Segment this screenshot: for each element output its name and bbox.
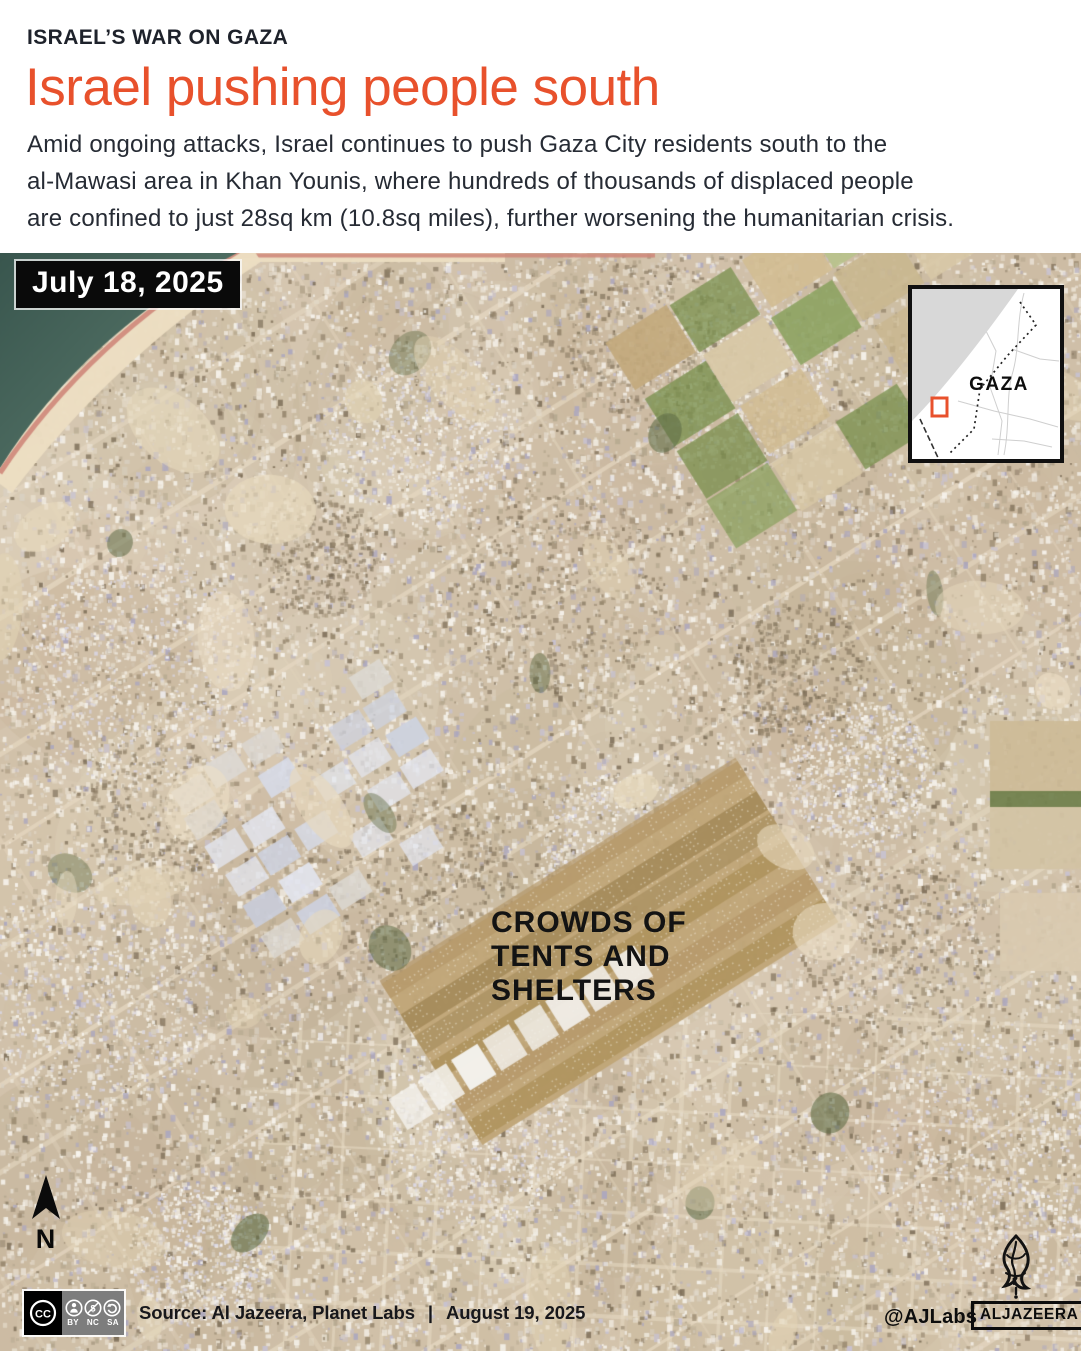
cc-nc-icon: $ xyxy=(84,1299,102,1317)
aljazeera-wordmark: ALJAZEERA xyxy=(971,1301,1081,1330)
cc-sa-label: SA xyxy=(107,1318,119,1327)
cc-sa-icon xyxy=(103,1299,121,1317)
description: Amid ongoing attacks, Israel continues t… xyxy=(27,126,954,237)
north-indicator: N xyxy=(28,1175,64,1255)
north-label: N xyxy=(28,1224,64,1255)
svg-text:CC: CC xyxy=(35,1309,51,1321)
source-separator: | xyxy=(428,1302,433,1323)
source-line: Source: Al Jazeera, Planet Labs|August 1… xyxy=(139,1302,585,1324)
cc-by-icon xyxy=(65,1299,83,1317)
cc-by-label: BY xyxy=(67,1318,79,1327)
map-annotation: CROWDS OF TENTS AND SHELTERS xyxy=(491,906,687,1008)
source-label: Source: Al Jazeera, Planet Labs xyxy=(139,1302,415,1323)
north-arrow-icon xyxy=(29,1175,63,1221)
annotation-line: CROWDS OF xyxy=(491,906,687,940)
description-line: al-Mawasi area in Khan Younis, where hun… xyxy=(27,163,954,200)
header: ISRAEL’S WAR ON GAZA Israel pushing peop… xyxy=(0,0,1081,253)
date-badge: July 18, 2025 xyxy=(16,261,240,308)
aljazeera-flame-logo-icon xyxy=(993,1234,1039,1305)
kicker: ISRAEL’S WAR ON GAZA xyxy=(27,26,288,50)
inset-map-graphic: GAZA xyxy=(912,289,1060,459)
inset-region-label: GAZA xyxy=(969,374,1029,395)
page-title: Israel pushing people south xyxy=(25,57,660,118)
description-line: are confined to just 28sq km (10.8sq mil… xyxy=(27,200,954,237)
inset-locator-map: GAZA xyxy=(908,285,1064,463)
annotation-line: TENTS AND xyxy=(491,940,687,974)
cc-icon: CC xyxy=(24,1291,62,1335)
satellite-map: July 18, 2025 GAZA CROWDS OF T xyxy=(0,253,1081,1351)
cc-conditions: $ BY NC SA xyxy=(62,1291,124,1335)
cc-nc-label: NC xyxy=(87,1318,99,1327)
annotation-line: SHELTERS xyxy=(491,974,687,1008)
published-date: August 19, 2025 xyxy=(446,1302,585,1323)
cc-license-badge: CC $ xyxy=(24,1291,124,1335)
ajlabs-credit: @AJLabs xyxy=(884,1306,977,1329)
description-line: Amid ongoing attacks, Israel continues t… xyxy=(27,126,954,163)
